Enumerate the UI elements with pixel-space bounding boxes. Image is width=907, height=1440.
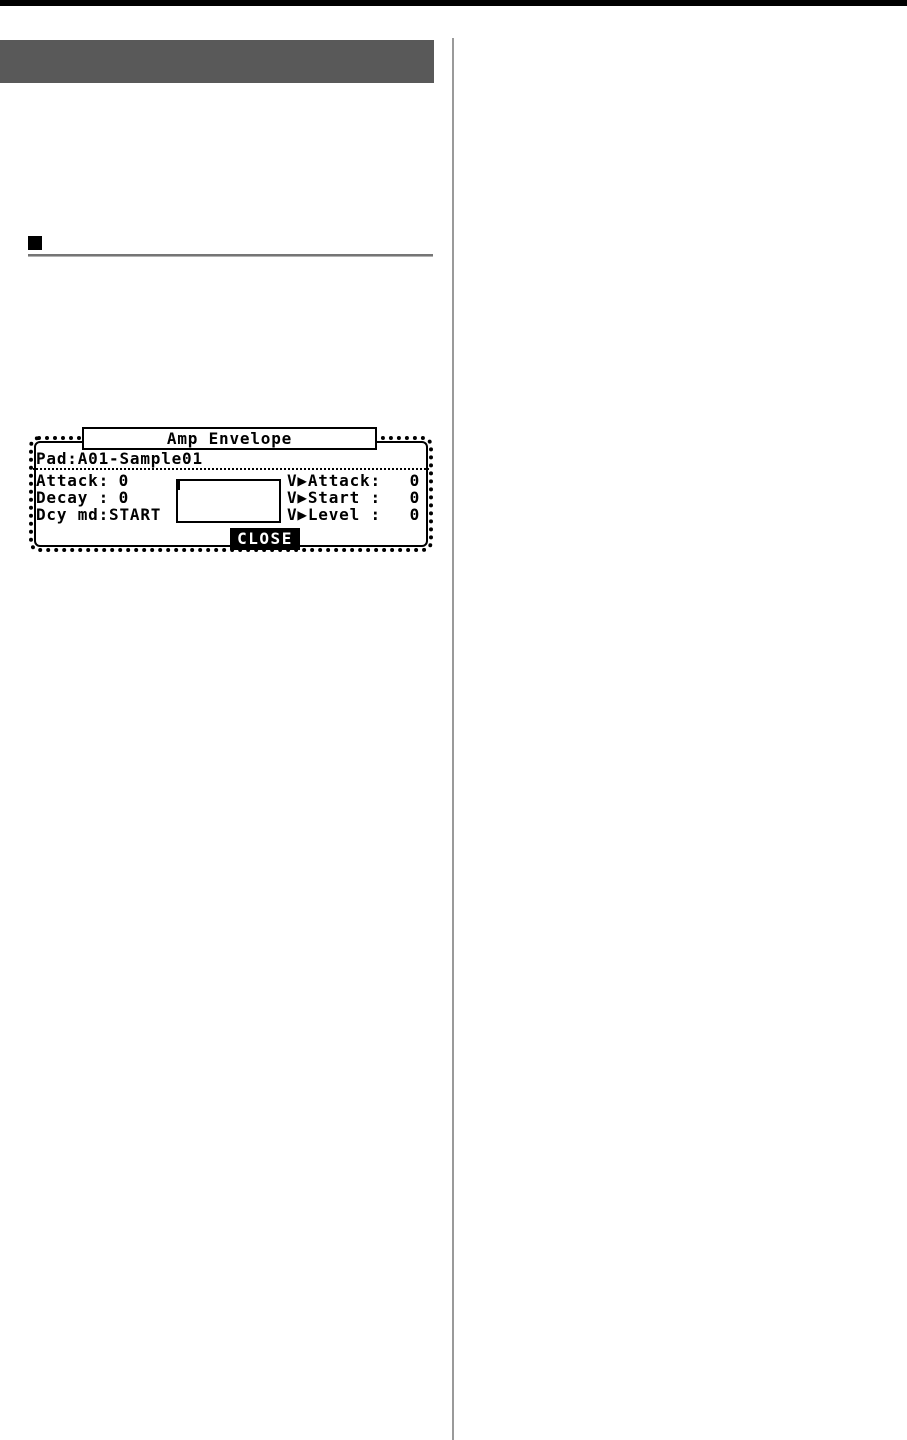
decay-value[interactable]: 0 xyxy=(109,490,129,506)
manual-page: Amp Envelope Pad:A01-Sample01 Attack:0 D… xyxy=(0,0,907,1440)
close-button[interactable]: CLOSE xyxy=(230,528,300,550)
decay-mode-value[interactable]: START xyxy=(109,505,161,524)
column-divider-line xyxy=(452,38,454,1440)
attack-field[interactable]: Attack:0 xyxy=(36,473,129,489)
envelope-display-box xyxy=(176,479,281,523)
chapter-header-band xyxy=(0,40,434,83)
velocity-level-field[interactable]: V▶Level :0 xyxy=(287,507,420,523)
section-heading-rule xyxy=(28,254,433,257)
velocity-attack-field[interactable]: V▶Attack:0 xyxy=(287,473,420,489)
velocity-start-field[interactable]: V▶Start :0 xyxy=(287,490,420,506)
pad-field-value[interactable]: A01-Sample01 xyxy=(78,449,203,468)
velocity-level-value[interactable]: 0 xyxy=(410,507,420,523)
attack-value[interactable]: 0 xyxy=(109,473,129,489)
velocity-attack-value[interactable]: 0 xyxy=(410,473,420,489)
envelope-line xyxy=(178,481,180,490)
decay-mode-field[interactable]: Dcy md:START xyxy=(36,507,161,523)
dialog-dotted-separator xyxy=(33,468,429,470)
amp-envelope-dialog: Amp Envelope Pad:A01-Sample01 Attack:0 D… xyxy=(29,436,433,552)
decay-field[interactable]: Decay :0 xyxy=(36,490,129,506)
page-top-bar xyxy=(0,0,907,6)
section-bullet-square xyxy=(28,236,42,250)
pad-field[interactable]: Pad:A01-Sample01 xyxy=(36,451,203,467)
velocity-level-label: V▶Level : xyxy=(287,505,381,524)
velocity-start-value[interactable]: 0 xyxy=(410,490,420,506)
decay-mode-label: Dcy md: xyxy=(36,505,109,524)
dialog-title: Amp Envelope xyxy=(82,427,377,450)
pad-field-label: Pad: xyxy=(36,449,78,468)
